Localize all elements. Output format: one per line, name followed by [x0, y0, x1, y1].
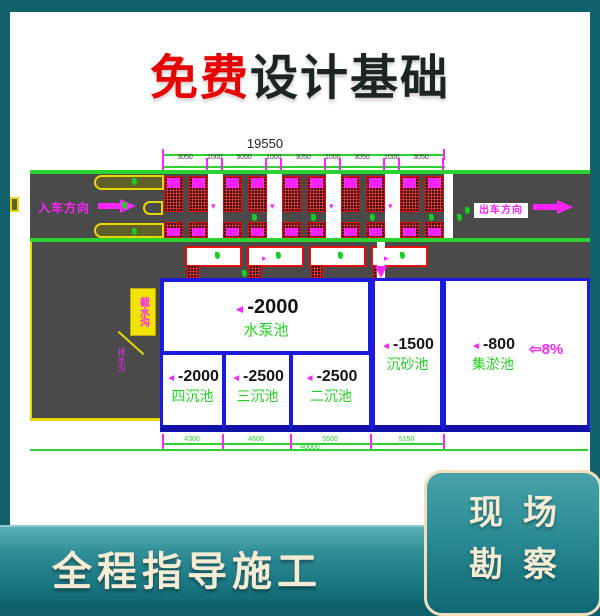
drain-channel [185, 246, 242, 267]
grass-mark [132, 228, 137, 235]
segment-dimension-label: 3050 [340, 154, 384, 161]
exit-arrow-head [557, 200, 573, 214]
overall-dimension-label: 40000 [295, 444, 325, 451]
depth-marker: ◄ [166, 373, 176, 384]
title-rest: 设计基础 [250, 52, 450, 105]
wash-bay-cap [403, 178, 416, 188]
wash-bay-cap [310, 178, 323, 188]
page-title: 免费设计基础 [10, 38, 590, 108]
pool-silt-name: 集淤池 [472, 354, 514, 374]
wash-bay-cap [428, 228, 441, 236]
wash-bay-cap [369, 178, 382, 188]
depth-marker: ◄ [231, 373, 241, 384]
mini-flow-arrow: ▾ [211, 202, 216, 211]
grass-mark [465, 207, 470, 214]
pool-pump-depth: -2000 [247, 296, 298, 318]
mini-flow-arrow: ▸ [384, 254, 389, 263]
grass-mark [132, 178, 137, 185]
corner-card-line1: 现场 [427, 487, 599, 539]
mini-flow-arrow: ▸ [262, 254, 267, 263]
exit-arrow [533, 204, 557, 210]
slope-annotation: ⇦8% [529, 340, 563, 358]
wash-bay-cap [226, 178, 239, 188]
bottom-dimension-label: 5150 [370, 436, 443, 443]
wash-bay-cap [428, 178, 441, 188]
edge-marker-box [10, 197, 19, 212]
traffic-island-small [143, 201, 163, 215]
pool-sed2-depth: -2500 [316, 368, 357, 385]
entry-direction-label: 入车方向 [38, 199, 90, 216]
pool-sed4-name: 四沉池 [172, 386, 214, 406]
segment-dimension-label: 3050 [163, 154, 207, 161]
connector-column [311, 265, 323, 278]
title-highlight: 免费 [150, 52, 250, 105]
corner-card-line2: 勘察 [427, 539, 599, 591]
wash-bay-cap [369, 228, 382, 236]
segment-dimension-label: 1000 [384, 154, 399, 161]
wash-bay-cap [251, 178, 264, 188]
depth-marker: ◄ [381, 341, 391, 352]
pool-silt-label: ◄-800 集淤池 [448, 336, 538, 374]
mini-flow-arrow: ▾ [270, 202, 275, 211]
poster: { "title": {"highlight": "免费", "rest": "… [0, 0, 600, 600]
pool-sed3-depth: -2500 [243, 368, 284, 385]
connector-column [187, 265, 199, 278]
segment-dimension-label: 3050 [399, 154, 443, 161]
pool-sed2-name: 二沉池 [310, 386, 352, 406]
segment-dimension-label: 1000 [266, 154, 281, 161]
pool-sed2-label: ◄-2500 二沉池 [290, 368, 372, 406]
white-panel: 免费设计基础 19550 入车方向 出车方向 截水沟 排水沟 ◄-2000 水泵… [10, 12, 590, 525]
grass-mark [457, 214, 462, 221]
wash-bay-cap [344, 178, 357, 188]
segment-dimension-label: 1000 [207, 154, 222, 161]
grass-mark [276, 252, 281, 259]
wash-bay-cap [285, 228, 298, 236]
grass-mark [370, 214, 375, 221]
grass-mark [252, 214, 257, 221]
footer-slogan: 全程指导施工 [52, 539, 322, 597]
pool-sed4-label: ◄-2000 四沉池 [160, 368, 225, 406]
pool-pump-label: ◄-2000 水泵池 [160, 296, 372, 340]
mini-flow-arrow: ▾ [329, 202, 334, 211]
grass-mark [429, 214, 434, 221]
connector-column [249, 265, 261, 278]
grass-mark [400, 252, 405, 259]
mini-flow-arrow: ▾ [388, 202, 393, 211]
wash-bay-cap [192, 228, 205, 236]
wash-bay-cap [226, 228, 239, 236]
corner-card: 现场 勘察 [424, 470, 600, 616]
grass-mark [215, 252, 220, 259]
wash-bay-cap [403, 228, 416, 236]
segment-dimension-label: 3050 [222, 154, 266, 161]
callout-label: 截水沟 [136, 297, 151, 327]
dim-tick [442, 158, 444, 170]
segment-dimension-label: 3050 [281, 154, 325, 161]
wash-bay-cap [310, 228, 323, 236]
flow-down-arrow [375, 266, 387, 278]
wash-bay-cap [251, 228, 264, 236]
wash-bay-cap [344, 228, 357, 236]
pool-sed4-depth: -2000 [178, 368, 219, 385]
pool-silt-depth: -800 [483, 336, 515, 353]
traffic-island [94, 175, 164, 190]
grass-mark [242, 270, 247, 277]
wash-bay-cap [285, 178, 298, 188]
pool-grit-name: 沉砂池 [387, 354, 429, 374]
bottom-dimension-label: 4300 [162, 436, 222, 443]
pool-sed3-label: ◄-2500 三沉池 [223, 368, 292, 406]
wash-bay-cap [167, 178, 180, 188]
callout-box: 截水沟 [130, 288, 156, 336]
grass-mark [338, 252, 343, 259]
exit-direction-label: 出车方向 [473, 202, 529, 219]
segment-dimension-label: 1000 [325, 154, 340, 161]
wash-bay-cap [192, 178, 205, 188]
dim-tick [443, 434, 445, 449]
pool-grit-depth: -1500 [393, 336, 434, 353]
wash-bay-cap [167, 228, 180, 236]
depth-marker: ◄ [233, 302, 245, 316]
traffic-island [94, 223, 164, 238]
depth-marker: ◄ [471, 341, 481, 352]
depth-marker: ◄ [305, 373, 315, 384]
pool-sed3-name: 三沉池 [237, 386, 279, 406]
grass-mark [122, 202, 127, 209]
pool-pump-name: 水泵池 [243, 319, 288, 340]
walkway-strip [444, 174, 453, 238]
grass-mark [311, 214, 316, 221]
pool-grit-label: ◄-1500 沉砂池 [372, 336, 443, 374]
callout-small-label: 排水沟 [116, 348, 127, 372]
entry-arrow [98, 203, 120, 209]
bottom-dimension-label: 4600 [222, 436, 290, 443]
bottom-dimension-label: 5500 [290, 436, 370, 443]
total-dimension-label: 19550 [205, 136, 325, 151]
